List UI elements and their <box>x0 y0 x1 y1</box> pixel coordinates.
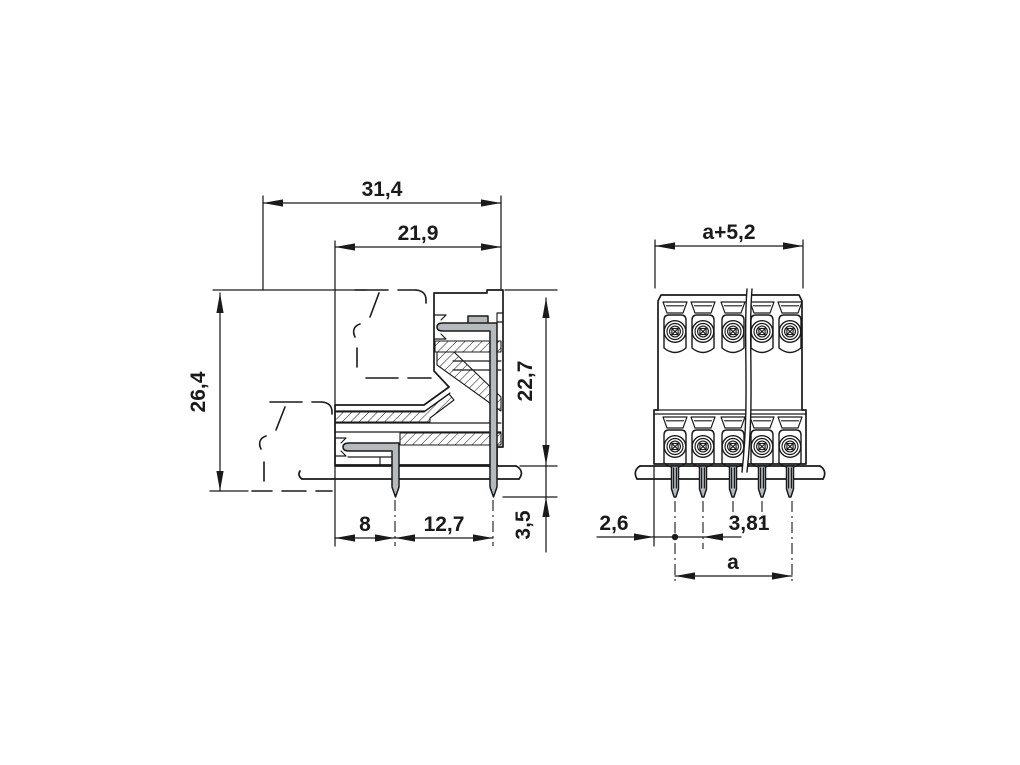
solder-pin <box>700 466 707 497</box>
drawing-canvas: 31,4 21,9 26,4 22,7 3,5 8 12,7 <box>0 0 1020 765</box>
dim-overall-depth: 31,4 <box>362 178 403 201</box>
connector-dimensional-drawing: 31,4 21,9 26,4 22,7 3,5 8 12,7 <box>0 0 1020 765</box>
pcb-side <box>299 466 521 479</box>
solder-pin <box>759 466 766 497</box>
phantom-plug-lower <box>252 402 332 491</box>
solder-pin <box>672 466 679 497</box>
dim-header-depth: 21,9 <box>398 222 439 245</box>
dim-row-spacing: 12,7 <box>424 513 465 536</box>
solder-pin <box>730 466 737 497</box>
dim-front-row-offset: 8 <box>359 513 371 536</box>
dim-overall-width: a+5,2 <box>702 221 755 244</box>
dim-height-above-board: 22,7 <box>514 361 537 402</box>
dim-total-height: 26,4 <box>187 371 210 412</box>
solder-pin <box>787 466 794 497</box>
side-view: 31,4 21,9 26,4 22,7 3,5 8 12,7 <box>187 178 557 552</box>
dim-pin-span: a <box>727 551 739 574</box>
dim-pitch: 3,81 <box>729 512 770 535</box>
front-view: a+5,2 2,6 3,81 a <box>597 221 825 584</box>
dimension-origin-dot <box>672 534 678 540</box>
lower-pin <box>343 443 399 497</box>
dim-pin-length: 3,5 <box>512 510 535 540</box>
dim-edge-to-first-pin: 2,6 <box>599 512 628 535</box>
phantom-plug-upper <box>354 290 431 378</box>
